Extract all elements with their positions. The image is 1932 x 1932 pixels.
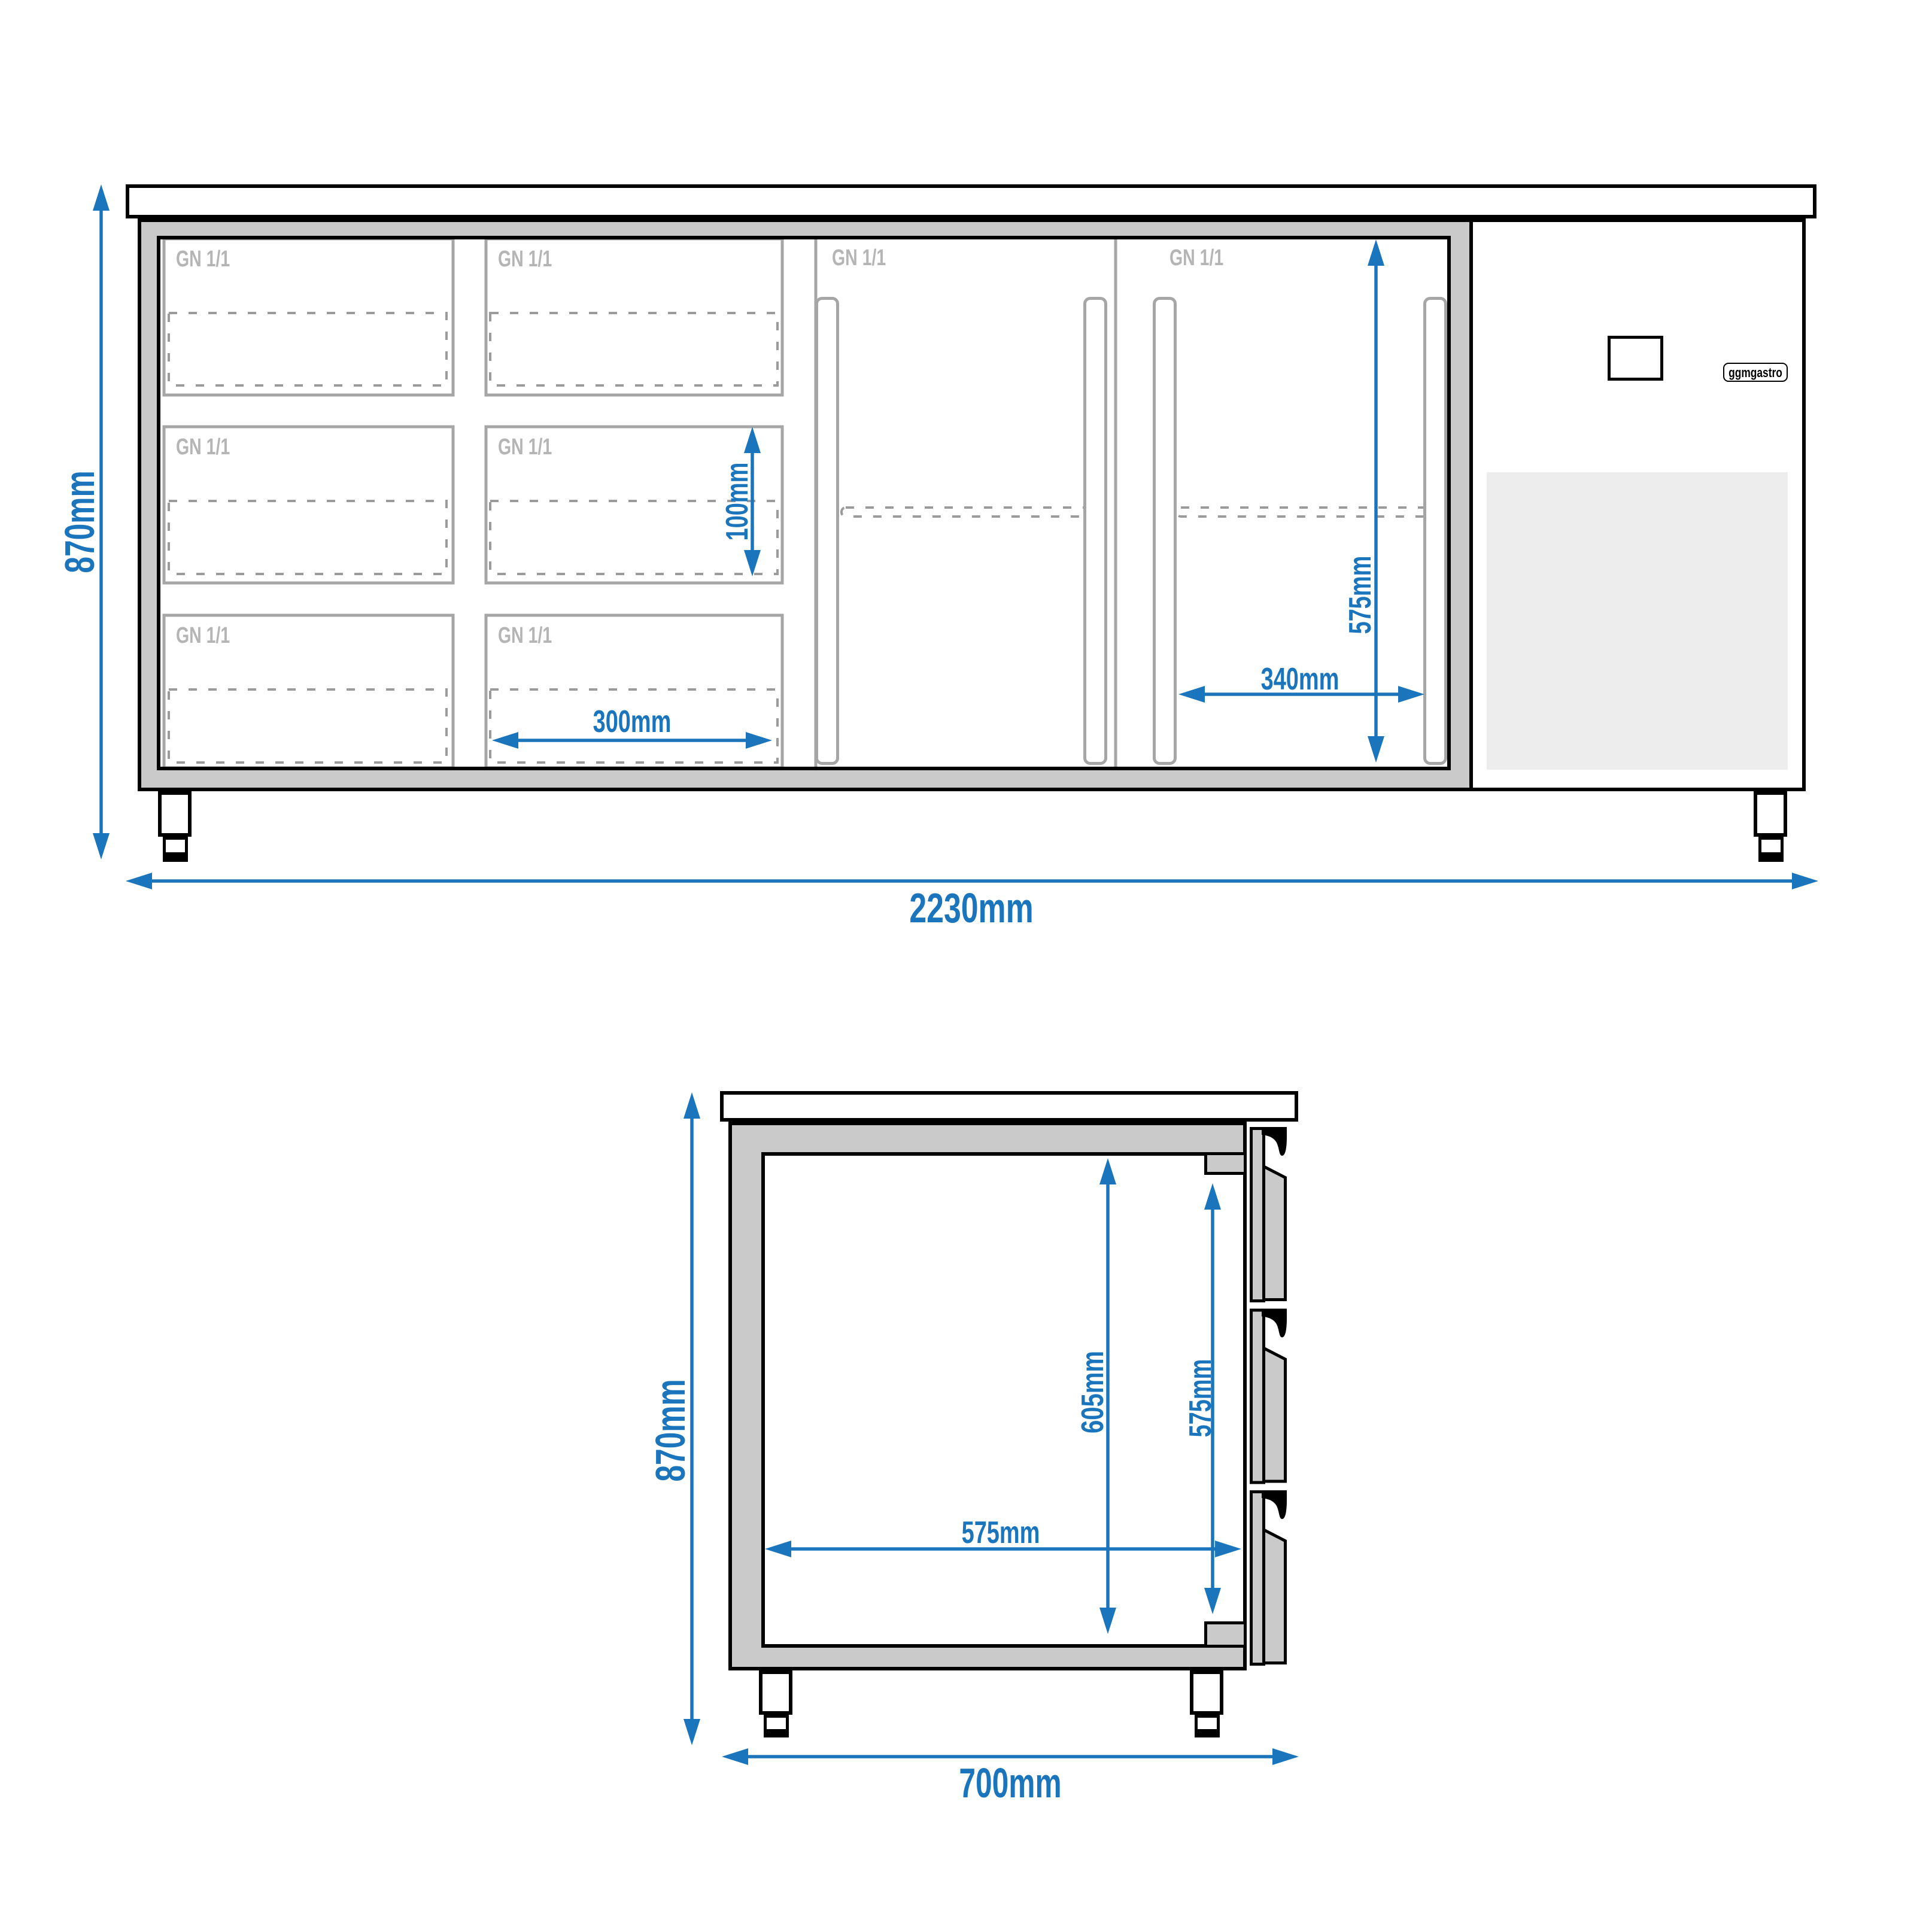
svg-text:ggmgastro: ggmgastro bbox=[1729, 366, 1782, 380]
svg-text:GN 1/1: GN 1/1 bbox=[176, 247, 230, 272]
svg-text:575mm: 575mm bbox=[962, 1515, 1040, 1550]
svg-text:300mm: 300mm bbox=[593, 704, 672, 739]
svg-text:GN 1/1: GN 1/1 bbox=[176, 623, 230, 648]
svg-text:2230mm: 2230mm bbox=[909, 885, 1033, 931]
svg-text:GN 1/1: GN 1/1 bbox=[832, 245, 886, 271]
svg-text:GN 1/1: GN 1/1 bbox=[176, 435, 230, 460]
svg-text:GN 1/1: GN 1/1 bbox=[1169, 245, 1223, 271]
svg-text:575mm: 575mm bbox=[1183, 1359, 1217, 1438]
svg-text:100mm: 100mm bbox=[719, 463, 754, 541]
svg-text:870mm: 870mm bbox=[56, 470, 103, 573]
svg-text:340mm: 340mm bbox=[1261, 661, 1339, 696]
svg-text:605mm: 605mm bbox=[1075, 1351, 1110, 1433]
svg-text:575mm: 575mm bbox=[1342, 556, 1377, 634]
svg-text:870mm: 870mm bbox=[647, 1379, 694, 1481]
svg-text:700mm: 700mm bbox=[959, 1760, 1061, 1806]
svg-text:GN 1/1: GN 1/1 bbox=[498, 247, 552, 272]
svg-text:GN 1/1: GN 1/1 bbox=[498, 623, 552, 648]
svg-text:GN 1/1: GN 1/1 bbox=[498, 435, 552, 460]
